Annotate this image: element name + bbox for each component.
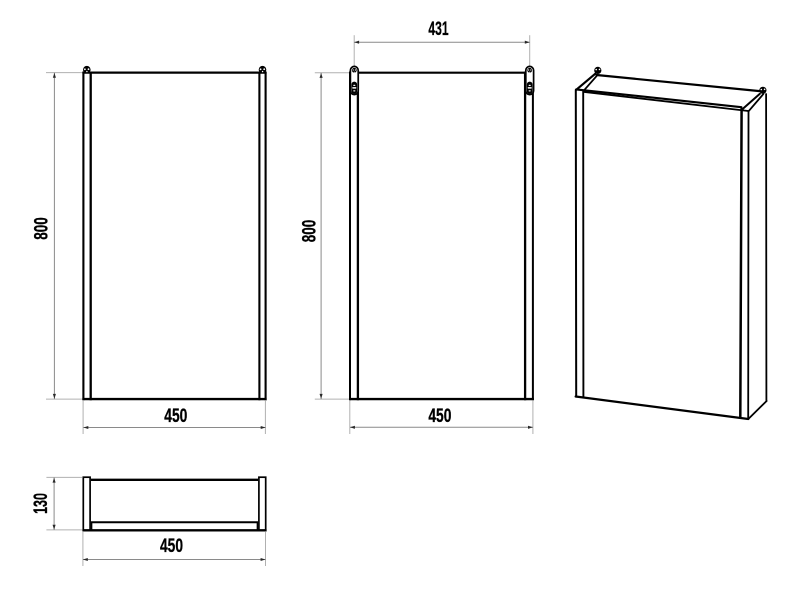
svg-text:130: 130 xyxy=(30,493,52,514)
svg-text:800: 800 xyxy=(299,220,321,243)
svg-text:800: 800 xyxy=(31,217,53,240)
svg-text:450: 450 xyxy=(160,535,183,557)
svg-text:450: 450 xyxy=(428,405,451,427)
svg-text:431: 431 xyxy=(428,18,448,40)
svg-text:450: 450 xyxy=(164,405,187,427)
